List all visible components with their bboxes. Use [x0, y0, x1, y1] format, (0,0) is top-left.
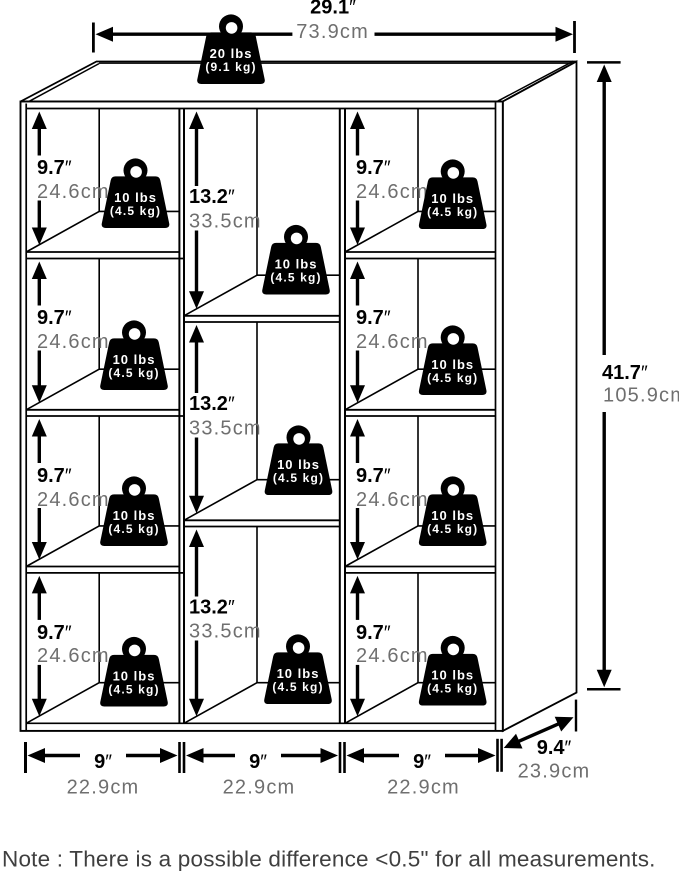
- svg-text:24.6cm: 24.6cm: [356, 489, 429, 511]
- svg-text:9.7″: 9.7″: [356, 157, 391, 179]
- svg-text:10 lbs: 10 lbs: [277, 666, 320, 681]
- svg-text:(4.5 kg): (4.5 kg): [108, 683, 159, 697]
- svg-text:33.5cm: 33.5cm: [189, 418, 262, 440]
- svg-text:24.6cm: 24.6cm: [37, 489, 110, 511]
- svg-text:24.6cm: 24.6cm: [356, 645, 429, 667]
- svg-text:(4.5 kg): (4.5 kg): [427, 371, 478, 385]
- svg-text:20 lbs: 20 lbs: [210, 46, 253, 61]
- svg-text:73.9cm: 73.9cm: [296, 21, 369, 43]
- svg-text:(4.5 kg): (4.5 kg): [427, 205, 478, 219]
- svg-text:9.7″: 9.7″: [37, 465, 72, 487]
- svg-text:10 lbs: 10 lbs: [431, 191, 474, 206]
- svg-text:9.7″: 9.7″: [356, 307, 391, 329]
- svg-text:Note : There is a possible dif: Note : There is a possible difference <0…: [2, 847, 656, 872]
- svg-text:10 lbs: 10 lbs: [431, 508, 474, 523]
- svg-text:24.6cm: 24.6cm: [356, 181, 429, 203]
- svg-text:9″: 9″: [413, 751, 431, 773]
- svg-text:10 lbs: 10 lbs: [277, 457, 320, 472]
- svg-text:13.2″: 13.2″: [189, 186, 235, 208]
- svg-text:9.7″: 9.7″: [37, 622, 72, 644]
- svg-text:33.5cm: 33.5cm: [189, 211, 262, 233]
- svg-text:10 lbs: 10 lbs: [431, 357, 474, 372]
- svg-text:10 lbs: 10 lbs: [113, 669, 156, 684]
- svg-text:9.4″: 9.4″: [537, 737, 572, 759]
- svg-text:9.7″: 9.7″: [37, 157, 72, 179]
- svg-text:(4.5 kg): (4.5 kg): [270, 271, 321, 285]
- svg-text:10 lbs: 10 lbs: [431, 668, 474, 683]
- svg-text:24.6cm: 24.6cm: [37, 181, 110, 203]
- svg-text:24.6cm: 24.6cm: [37, 645, 110, 667]
- svg-text:13.2″: 13.2″: [189, 597, 235, 619]
- svg-text:24.6cm: 24.6cm: [356, 331, 429, 353]
- svg-text:9″: 9″: [94, 751, 112, 773]
- svg-text:24.6cm: 24.6cm: [37, 331, 110, 353]
- svg-text:10 lbs: 10 lbs: [113, 508, 156, 523]
- svg-text:23.9cm: 23.9cm: [518, 761, 591, 783]
- svg-text:(4.5 kg): (4.5 kg): [110, 204, 161, 218]
- svg-text:(4.5 kg): (4.5 kg): [108, 366, 159, 380]
- svg-text:(4.5 kg): (4.5 kg): [108, 522, 159, 536]
- svg-text:22.9cm: 22.9cm: [387, 777, 460, 799]
- svg-text:(4.5 kg): (4.5 kg): [427, 682, 478, 696]
- svg-text:105.9cm: 105.9cm: [603, 385, 679, 407]
- svg-text:(4.5 kg): (4.5 kg): [272, 680, 323, 694]
- svg-text:10 lbs: 10 lbs: [114, 190, 157, 205]
- svg-text:10 lbs: 10 lbs: [113, 352, 156, 367]
- svg-text:9″: 9″: [249, 751, 267, 773]
- svg-text:33.5cm: 33.5cm: [189, 621, 262, 643]
- svg-text:9.7″: 9.7″: [356, 465, 391, 487]
- svg-text:9.7″: 9.7″: [37, 307, 72, 329]
- svg-text:22.9cm: 22.9cm: [223, 777, 296, 799]
- svg-text:(4.5 kg): (4.5 kg): [273, 471, 324, 485]
- svg-text:22.9cm: 22.9cm: [67, 777, 140, 799]
- svg-text:10 lbs: 10 lbs: [275, 257, 318, 272]
- svg-text:13.2″: 13.2″: [189, 393, 235, 415]
- svg-text:(4.5 kg): (4.5 kg): [427, 522, 478, 536]
- svg-text:41.7″: 41.7″: [602, 362, 648, 384]
- svg-text:9.7″: 9.7″: [356, 622, 391, 644]
- svg-text:29.1″: 29.1″: [310, 0, 356, 19]
- svg-text:(9.1 kg): (9.1 kg): [205, 60, 256, 74]
